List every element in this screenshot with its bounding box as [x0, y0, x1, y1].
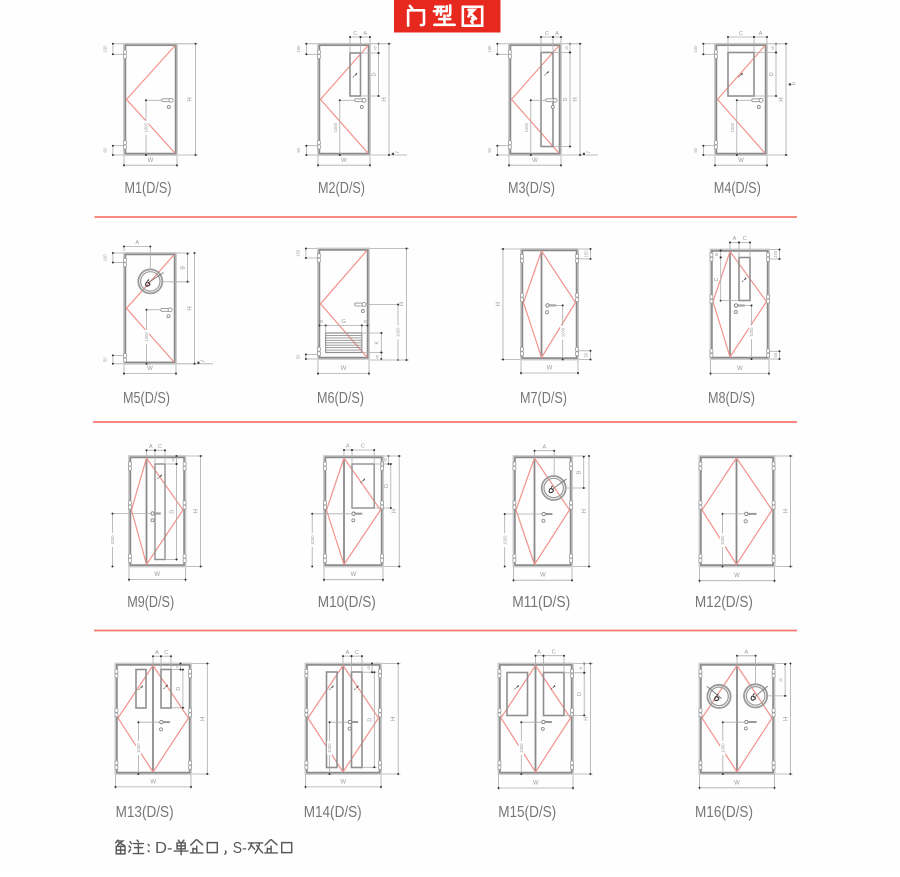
svg-text:50: 50: [102, 357, 107, 362]
svg-text:M1(D/S): M1(D/S): [125, 180, 172, 197]
svg-text:A: A: [733, 236, 737, 242]
svg-text:D: D: [170, 510, 176, 514]
svg-text:D-: D-: [155, 840, 173, 857]
svg-text:50: 50: [102, 147, 107, 152]
svg-text:W: W: [532, 158, 538, 164]
svg-text:1000: 1000: [144, 122, 149, 132]
svg-text:D: D: [176, 687, 182, 691]
svg-text:45: 45: [175, 665, 179, 669]
svg-text:S-: S-: [233, 840, 247, 857]
svg-text:H: H: [200, 717, 206, 721]
svg-text:M14(D/S): M14(D/S): [304, 804, 362, 821]
svg-text:D: D: [384, 484, 390, 488]
svg-text:A: A: [543, 444, 547, 450]
svg-text:E: E: [320, 319, 323, 324]
svg-text:50: 50: [693, 147, 698, 152]
svg-text:H: H: [392, 509, 398, 513]
svg-text:H: H: [382, 97, 388, 101]
svg-text:W: W: [148, 158, 154, 164]
svg-text:1000: 1000: [524, 122, 529, 132]
svg-text:W: W: [351, 572, 357, 578]
svg-text:1000: 1000: [560, 327, 565, 337]
svg-text:1000: 1000: [136, 743, 141, 753]
svg-text:C: C: [739, 31, 743, 37]
svg-text:W: W: [340, 779, 346, 785]
svg-text:A: A: [555, 31, 559, 37]
svg-text:M9(D/S): M9(D/S): [127, 594, 174, 611]
svg-text:D: D: [372, 72, 378, 76]
svg-text:M2(D/S): M2(D/S): [318, 180, 365, 197]
svg-text:50: 50: [773, 352, 778, 357]
svg-text:W: W: [147, 366, 153, 372]
svg-text:H: H: [194, 509, 200, 513]
svg-text:M7(D/S): M7(D/S): [520, 390, 567, 407]
svg-text:W: W: [540, 573, 546, 579]
svg-text:50: 50: [487, 147, 492, 152]
svg-text:50: 50: [296, 147, 301, 152]
svg-text:C: C: [552, 649, 556, 655]
svg-text:H: H: [582, 509, 588, 513]
svg-text:150: 150: [693, 45, 698, 53]
svg-text:45: 45: [376, 355, 380, 359]
svg-text:1000: 1000: [730, 122, 735, 132]
svg-text:1000: 1000: [720, 743, 725, 753]
svg-text:45: 45: [373, 46, 377, 50]
svg-text:A: A: [759, 31, 763, 37]
svg-text:C: C: [743, 236, 747, 242]
svg-text:150: 150: [102, 254, 107, 262]
svg-text:H: H: [573, 97, 579, 101]
svg-text:H: H: [583, 717, 589, 721]
svg-text:M12(D/S): M12(D/S): [695, 594, 753, 611]
svg-text:A: A: [363, 31, 367, 37]
svg-text:A: A: [537, 649, 541, 655]
svg-text:D: D: [769, 72, 775, 76]
svg-text:W: W: [738, 158, 744, 164]
svg-text:M6(D/S): M6(D/S): [317, 390, 364, 407]
svg-text:W: W: [734, 573, 740, 579]
svg-text:H: H: [784, 509, 790, 513]
svg-text:W: W: [341, 158, 347, 164]
svg-text:W: W: [547, 366, 553, 372]
svg-text:C: C: [714, 277, 720, 281]
svg-text:B: B: [714, 253, 719, 256]
svg-text:A: A: [744, 650, 748, 656]
svg-text:A: A: [346, 650, 350, 656]
svg-text:150: 150: [296, 45, 301, 53]
svg-text:G: G: [342, 319, 346, 325]
svg-text:M13(D/S): M13(D/S): [116, 804, 174, 821]
svg-text:M11(D/S): M11(D/S): [512, 594, 570, 611]
svg-text:D: D: [577, 692, 583, 696]
svg-text:W: W: [150, 779, 156, 785]
svg-text:A: A: [346, 444, 350, 450]
svg-text:W: W: [533, 781, 539, 787]
svg-text:50: 50: [295, 354, 300, 359]
svg-text:45: 45: [383, 458, 387, 462]
svg-text:50: 50: [584, 352, 589, 357]
svg-text:1000: 1000: [720, 535, 725, 545]
svg-text:D: D: [367, 718, 373, 722]
svg-text:A: A: [149, 444, 153, 450]
svg-text:C: C: [158, 444, 162, 450]
svg-text:H: H: [188, 306, 194, 310]
svg-text:1000: 1000: [502, 535, 507, 545]
svg-text:H: H: [779, 97, 785, 101]
svg-text:45: 45: [171, 458, 175, 462]
svg-text:M16(D/S): M16(D/S): [695, 804, 753, 821]
svg-text:150: 150: [584, 250, 589, 258]
svg-text:M5(D/S): M5(D/S): [123, 390, 170, 407]
svg-text:C: C: [545, 31, 549, 37]
svg-text:C: C: [361, 444, 365, 450]
svg-text:150: 150: [773, 250, 778, 258]
svg-text:1000: 1000: [396, 327, 401, 337]
svg-text:D: D: [563, 97, 569, 101]
svg-text:45: 45: [367, 666, 371, 670]
svg-text:1000: 1000: [519, 743, 524, 753]
svg-text:A: A: [155, 650, 159, 656]
svg-text:45: 45: [565, 46, 569, 50]
svg-text:M15(D/S): M15(D/S): [498, 804, 556, 821]
svg-text:C: C: [164, 650, 168, 656]
svg-text:150: 150: [295, 249, 300, 257]
svg-text:H: H: [783, 717, 789, 721]
svg-text:C: C: [355, 650, 359, 656]
svg-text:B: B: [181, 266, 187, 270]
svg-text:1000: 1000: [327, 743, 332, 753]
svg-text:M4(D/S): M4(D/S): [714, 180, 761, 197]
svg-text:H: H: [400, 302, 406, 306]
svg-text:E: E: [364, 319, 367, 324]
svg-text:1000: 1000: [333, 122, 338, 132]
svg-text:150: 150: [102, 45, 107, 53]
svg-text:W: W: [734, 780, 740, 786]
svg-text:45: 45: [779, 678, 783, 682]
svg-text:M8(D/S): M8(D/S): [708, 390, 755, 407]
svg-text:45: 45: [771, 46, 775, 50]
svg-text:1000: 1000: [310, 535, 315, 545]
svg-text:1000: 1000: [110, 535, 115, 545]
svg-text:M3(D/S): M3(D/S): [508, 180, 555, 197]
svg-text:H: H: [496, 302, 502, 306]
svg-text:H: H: [391, 717, 397, 721]
svg-text:1000: 1000: [749, 327, 754, 337]
svg-text:150: 150: [487, 45, 492, 53]
svg-text:C: C: [353, 31, 357, 37]
svg-text:M10(D/S): M10(D/S): [318, 594, 376, 611]
svg-text:K: K: [374, 341, 380, 345]
svg-text:1000: 1000: [144, 331, 149, 341]
svg-text:B: B: [577, 470, 583, 474]
svg-text:A: A: [135, 240, 139, 246]
svg-text:B: B: [578, 666, 583, 669]
svg-text:W: W: [341, 366, 347, 372]
svg-text:W: W: [154, 572, 160, 578]
svg-text:W: W: [737, 366, 743, 372]
svg-text:H: H: [188, 97, 194, 101]
